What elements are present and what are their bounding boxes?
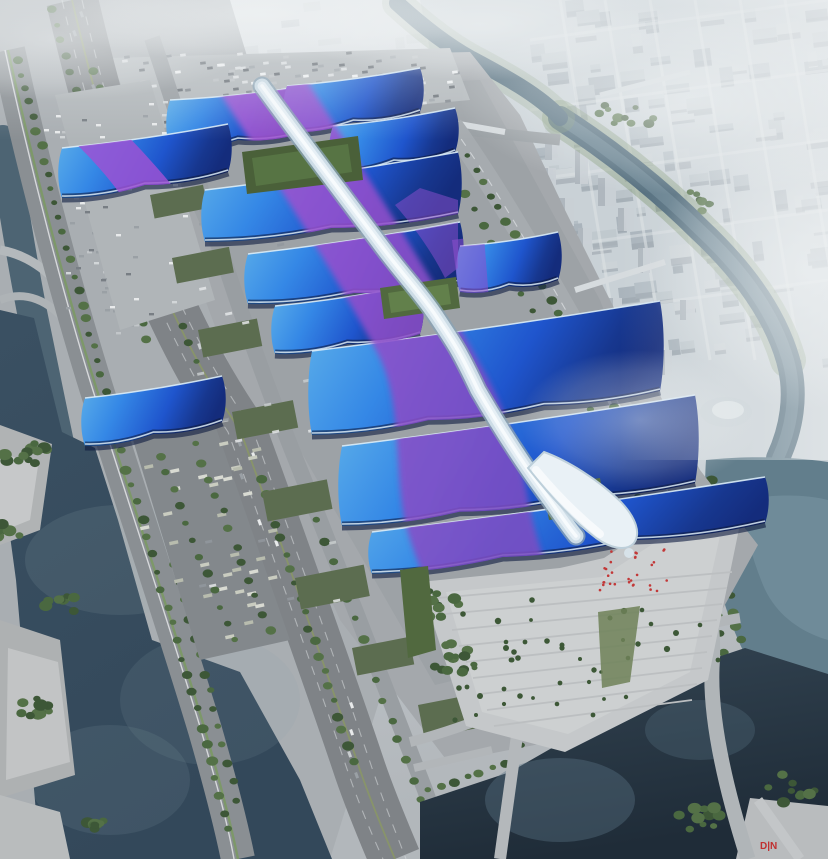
- svg-text:D|N: D|N: [760, 841, 777, 852]
